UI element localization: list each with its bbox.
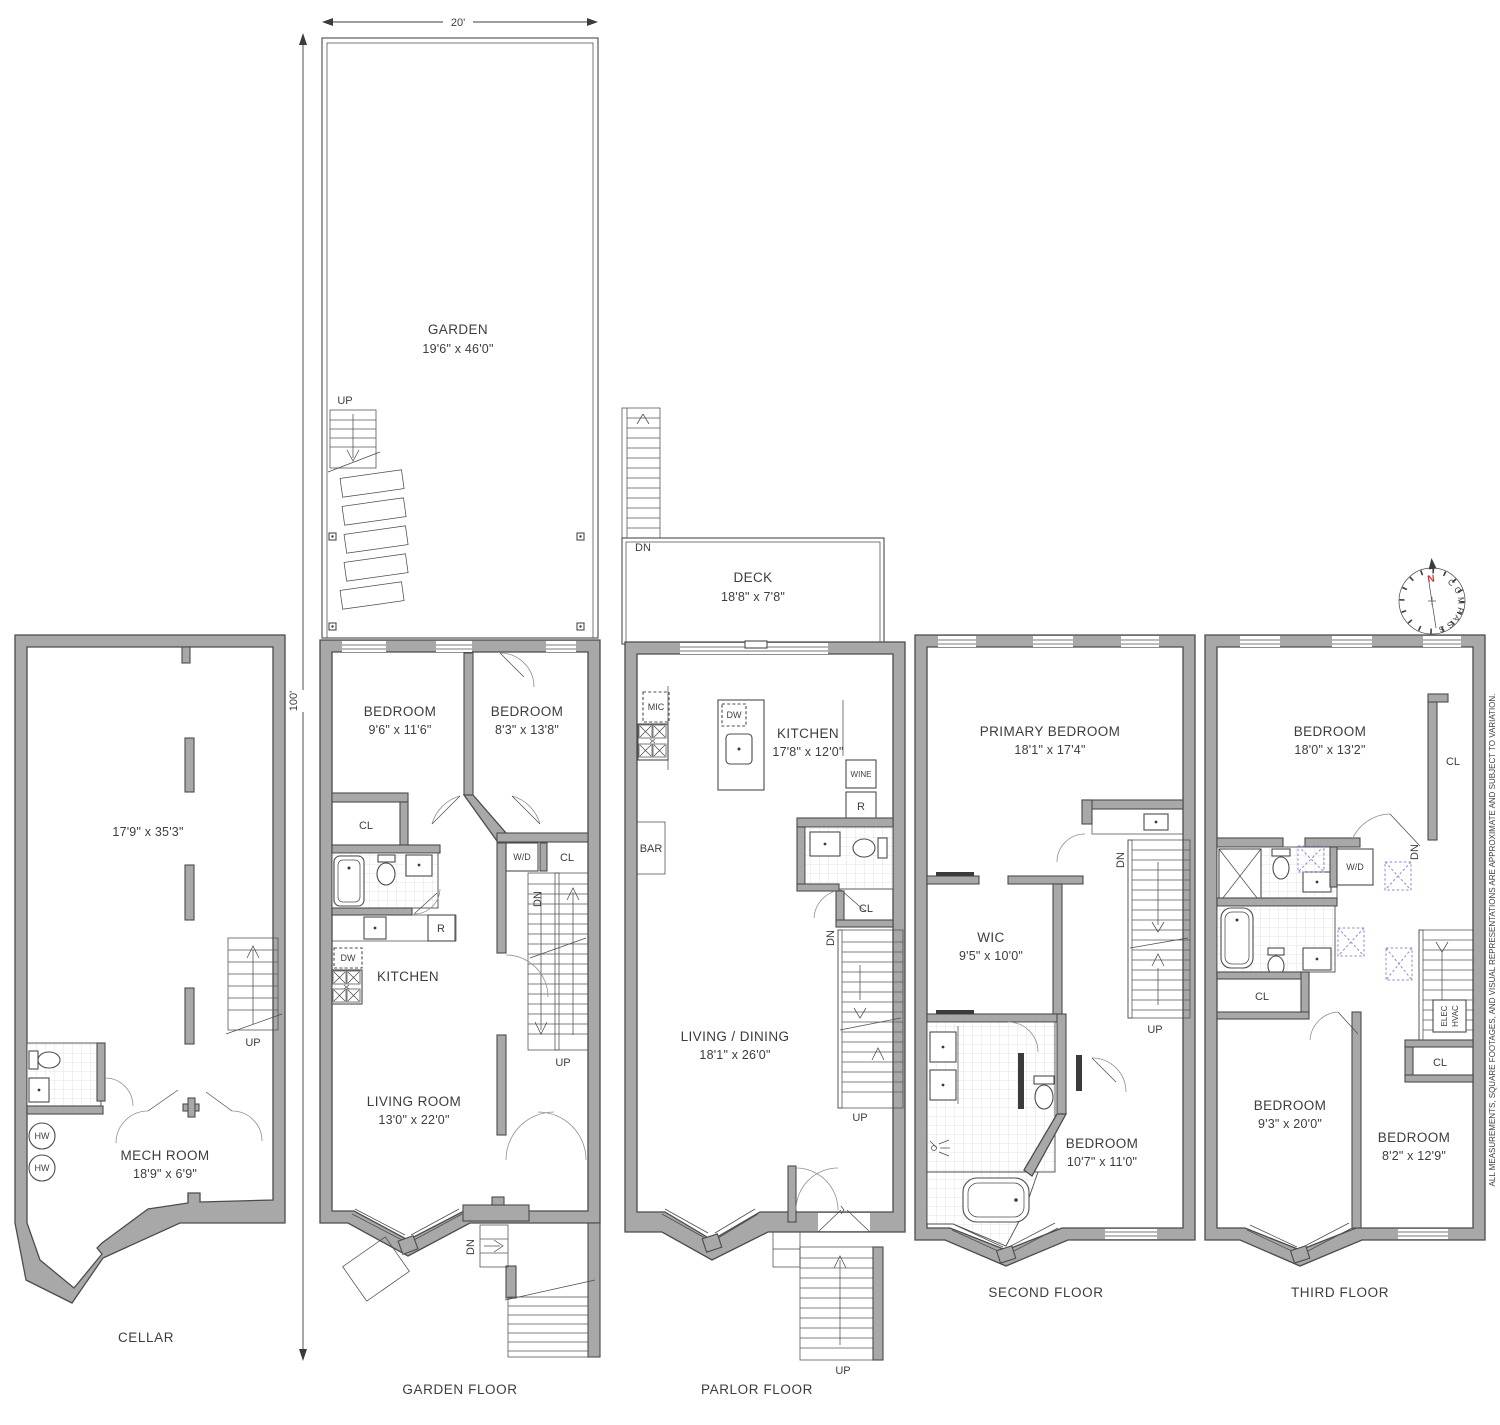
room-label-bedroom2: BEDROOM — [491, 704, 564, 719]
garden-kitchen: R DW KITCHEN — [332, 915, 456, 1004]
floor-plan-parlor: DN DECK 18'8" x 7'8" MIC DW — [622, 408, 905, 1397]
garden-boundary — [322, 38, 598, 638]
washer-dryer-label: W/D — [1346, 862, 1364, 872]
toilet-icon — [29, 1051, 38, 1069]
room-label-bedroom-right: BEDROOM — [1378, 1130, 1451, 1145]
wall — [1428, 700, 1437, 840]
entry-dn-label: DN — [465, 1239, 477, 1255]
microwave-label: MIC — [648, 702, 665, 712]
wall — [1405, 1075, 1473, 1082]
lot-depth-dimension: 100' — [288, 691, 300, 711]
wall-stub — [185, 988, 194, 1044]
floor-label-second: SECOND FLOOR — [988, 1285, 1103, 1300]
closet-label: CL — [1433, 1057, 1447, 1069]
deck-dn-label: DN — [635, 542, 651, 554]
stairs-dn-label: DN — [1409, 844, 1421, 860]
toilet-icon — [1035, 1085, 1053, 1109]
washer-dryer-label: W/D — [513, 852, 531, 862]
wall — [1008, 876, 1083, 884]
refrigerator-label: R — [437, 923, 445, 935]
room-label-bedroom-left: BEDROOM — [1254, 1098, 1327, 1113]
wall — [27, 1106, 103, 1114]
room-label-bedroom: BEDROOM — [1066, 1136, 1139, 1151]
wall — [332, 845, 440, 853]
floor-label-garden: GARDEN FLOOR — [402, 1382, 517, 1397]
room-dims-primary-bedroom: 18'1" x 17'4" — [1014, 743, 1085, 757]
wall — [97, 1043, 105, 1101]
wall — [797, 818, 893, 827]
wall-stub — [188, 1098, 195, 1117]
room-label-living: LIVING ROOM — [367, 1094, 461, 1109]
second-stairs: UP — [1128, 840, 1190, 1036]
toilet-icon — [377, 863, 395, 885]
garden-stairs — [328, 410, 380, 472]
room-dims-garden: 19'6" x 46'0" — [422, 342, 493, 356]
garden-stairs-interior: DN UP — [528, 873, 588, 1069]
toilet-icon — [1273, 857, 1289, 879]
garden-bathroom — [332, 853, 440, 915]
room-dims-wic: 9'5" x 10'0" — [959, 949, 1023, 963]
room-dims-bedroom-top: 18'0" x 13'2" — [1294, 743, 1365, 757]
garden-step-stones — [340, 470, 408, 609]
compass-icon: N COMPASS — [1399, 558, 1467, 636]
room-dims-deck: 18'8" x 7'8" — [721, 590, 785, 604]
closet-label: CL — [359, 820, 373, 832]
pocket-door — [936, 872, 974, 876]
stairs-up-label: UP — [555, 1057, 570, 1069]
floor-plan-drawing: 20' 100' 17'9" x 35'3" UP — [0, 0, 1500, 1425]
floor-label-third: THIRD FLOOR — [1291, 1285, 1389, 1300]
wall — [1053, 884, 1062, 1016]
wall — [1217, 972, 1309, 979]
wall — [1301, 972, 1309, 1016]
room-dims-bedroom-right: 8'2" x 12'9" — [1382, 1149, 1446, 1163]
toilet-icon — [378, 855, 395, 862]
deck-stairs: DN — [622, 408, 660, 554]
refrigerator-label: R — [857, 801, 865, 813]
room-label-garden: GARDEN — [428, 322, 488, 337]
compass-north-label: N — [1427, 574, 1436, 586]
floor-label-cellar: CELLAR — [118, 1330, 174, 1345]
wall — [873, 1247, 883, 1360]
disclaimer-text: ALL MEASUREMENTS, SQUARE FOOTAGES, AND V… — [1488, 694, 1497, 1187]
wall — [927, 876, 979, 884]
wall — [332, 908, 412, 915]
wall — [497, 1035, 506, 1135]
wall — [463, 1205, 529, 1221]
toilet-icon — [853, 839, 875, 857]
room-label-kitchen: KITCHEN — [377, 969, 439, 984]
room-label-kitchen: KITCHEN — [777, 726, 839, 741]
wall — [1217, 838, 1283, 847]
room-dims-living-dining: 18'1" x 26'0" — [699, 1048, 770, 1062]
floor-plan-garden: BEDROOM 9'6" x 11'6" BEDROOM 8'3" x 13'8… — [320, 640, 600, 1397]
elec-hvac-closet — [1433, 1000, 1466, 1032]
entry-door — [818, 1206, 870, 1232]
toilet-icon — [38, 1052, 60, 1068]
wall — [492, 1197, 504, 1205]
parlor-stairs-interior: DN UP — [825, 930, 903, 1124]
room-dims-bedroom: 10'7" x 11'0" — [1067, 1155, 1137, 1169]
floor-label-parlor: PARLOR FLOOR — [701, 1382, 813, 1397]
floor-plan-third: BEDROOM 18'0" x 13'2" CL W/D DN — [1205, 635, 1485, 1300]
room-label-mech: MECH ROOM — [120, 1148, 209, 1163]
cellar-water-heaters: HW HW — [29, 1123, 55, 1181]
closet-label: CL — [560, 852, 574, 864]
wall — [497, 843, 506, 953]
stairs-up-label: UP — [337, 395, 352, 407]
closet-label: CL — [1255, 991, 1269, 1003]
wall — [506, 1266, 516, 1298]
wall — [1352, 1012, 1361, 1228]
stairs-up-label: UP — [1147, 1024, 1162, 1036]
wall — [927, 1014, 1062, 1022]
stairs-dn-label: DN — [1115, 852, 1127, 868]
elec-label: ELEC — [1440, 1005, 1449, 1026]
stairs-dn-label: DN — [825, 930, 837, 946]
wall-stub — [182, 647, 190, 663]
third-bathroom-lower — [1217, 898, 1337, 976]
windows-top — [1240, 636, 1461, 647]
stairs-up-label: UP — [245, 1037, 260, 1049]
bar-label: BAR — [640, 843, 663, 855]
wall — [1217, 898, 1337, 906]
cellar-bathroom — [27, 1043, 133, 1114]
dimension-lines: 20' 100' — [288, 17, 598, 1361]
bathtub-icon — [1221, 908, 1253, 968]
closet-label: CL — [859, 903, 873, 915]
wall — [1405, 1047, 1413, 1077]
wall — [1217, 1012, 1309, 1019]
water-heater-label: HW — [35, 1131, 50, 1141]
toilet-icon — [878, 838, 887, 858]
stairs-up-label: UP — [852, 1112, 867, 1124]
stoop-up-label: UP — [835, 1365, 850, 1377]
room-dims-bedroom2: 8'3" x 13'8" — [495, 723, 559, 737]
room-dims-living: 13'0" x 22'0" — [378, 1113, 449, 1127]
wall-stub — [185, 738, 194, 792]
wall — [1082, 800, 1183, 809]
stairs-dn-label: DN — [532, 891, 544, 907]
plumbing-wall — [1018, 1053, 1024, 1109]
wall — [497, 833, 588, 842]
room-label-primary-bedroom: PRIMARY BEDROOM — [980, 724, 1121, 739]
wall — [332, 793, 408, 802]
wall — [797, 884, 839, 891]
hvac-label: HVAC — [1451, 1005, 1460, 1027]
parlor-stoop: UP — [773, 1232, 883, 1377]
room-label-deck: DECK — [733, 570, 772, 585]
wall — [1057, 1014, 1066, 1114]
floor-plan-sheet: 20' 100' 17'9" x 35'3" UP — [0, 0, 1500, 1425]
windows-top — [938, 636, 1159, 647]
toilet-icon — [1272, 849, 1290, 856]
wall — [836, 920, 893, 927]
room-label-wic: WIC — [977, 930, 1004, 945]
room-dims-bedroom1: 9'6" x 11'6" — [368, 723, 431, 737]
cellar-main-dimensions: 17'9" x 35'3" — [112, 825, 183, 839]
parlor-bathroom — [797, 818, 893, 918]
stoop-stairs — [505, 1280, 595, 1357]
wall — [797, 827, 805, 890]
plumbing-wall — [1076, 1055, 1082, 1091]
wall — [1082, 800, 1092, 824]
wall — [1428, 694, 1448, 702]
wall — [400, 802, 408, 845]
third-bathroom-upper: W/D — [1217, 847, 1373, 903]
compass-word: COMPASS — [1436, 577, 1467, 636]
room-dims-kitchen: 17'8" x 12'0" — [772, 745, 843, 759]
wall — [588, 1223, 600, 1357]
wall — [1405, 1040, 1473, 1047]
garden-posts — [329, 533, 584, 630]
water-heater-label: HW — [35, 1163, 50, 1173]
svg-text:COMPASS: COMPASS — [1436, 577, 1467, 636]
hall-counter — [1092, 809, 1183, 834]
room-label-living-dining: LIVING / DINING — [681, 1029, 790, 1044]
wall — [1330, 847, 1337, 887]
lot-width-dimension: 20' — [451, 17, 465, 29]
garden-outdoor: GARDEN 19'6" x 46'0" UP — [322, 38, 598, 638]
wall — [836, 891, 844, 923]
toilet-icon — [1034, 1076, 1054, 1084]
wall — [788, 1166, 796, 1222]
room-label-bedroom-top: BEDROOM — [1294, 724, 1367, 739]
room-dims-mech: 18'9" x 6'9" — [133, 1167, 197, 1181]
wall — [540, 843, 547, 871]
wall — [464, 653, 473, 795]
floor-plan-cellar: 17'9" x 35'3" UP HW HW — [15, 635, 285, 1345]
wine-label: WINE — [851, 770, 872, 779]
dishwasher-label: DW — [341, 953, 356, 963]
closet-label: CL — [1446, 756, 1460, 768]
room-dims-bedroom-left: 9'3" x 20'0" — [1258, 1117, 1322, 1131]
dishwasher-label: DW — [727, 710, 742, 720]
room-label-bedroom1: BEDROOM — [364, 704, 437, 719]
pocket-door — [936, 1010, 974, 1014]
wall-stub — [185, 865, 194, 920]
toilet-icon — [1268, 948, 1284, 955]
garden-boundary-inner — [327, 43, 593, 638]
floor-plan-second: PRIMARY BEDROOM 18'1" x 17'4" DN UP WIC … — [915, 635, 1195, 1300]
